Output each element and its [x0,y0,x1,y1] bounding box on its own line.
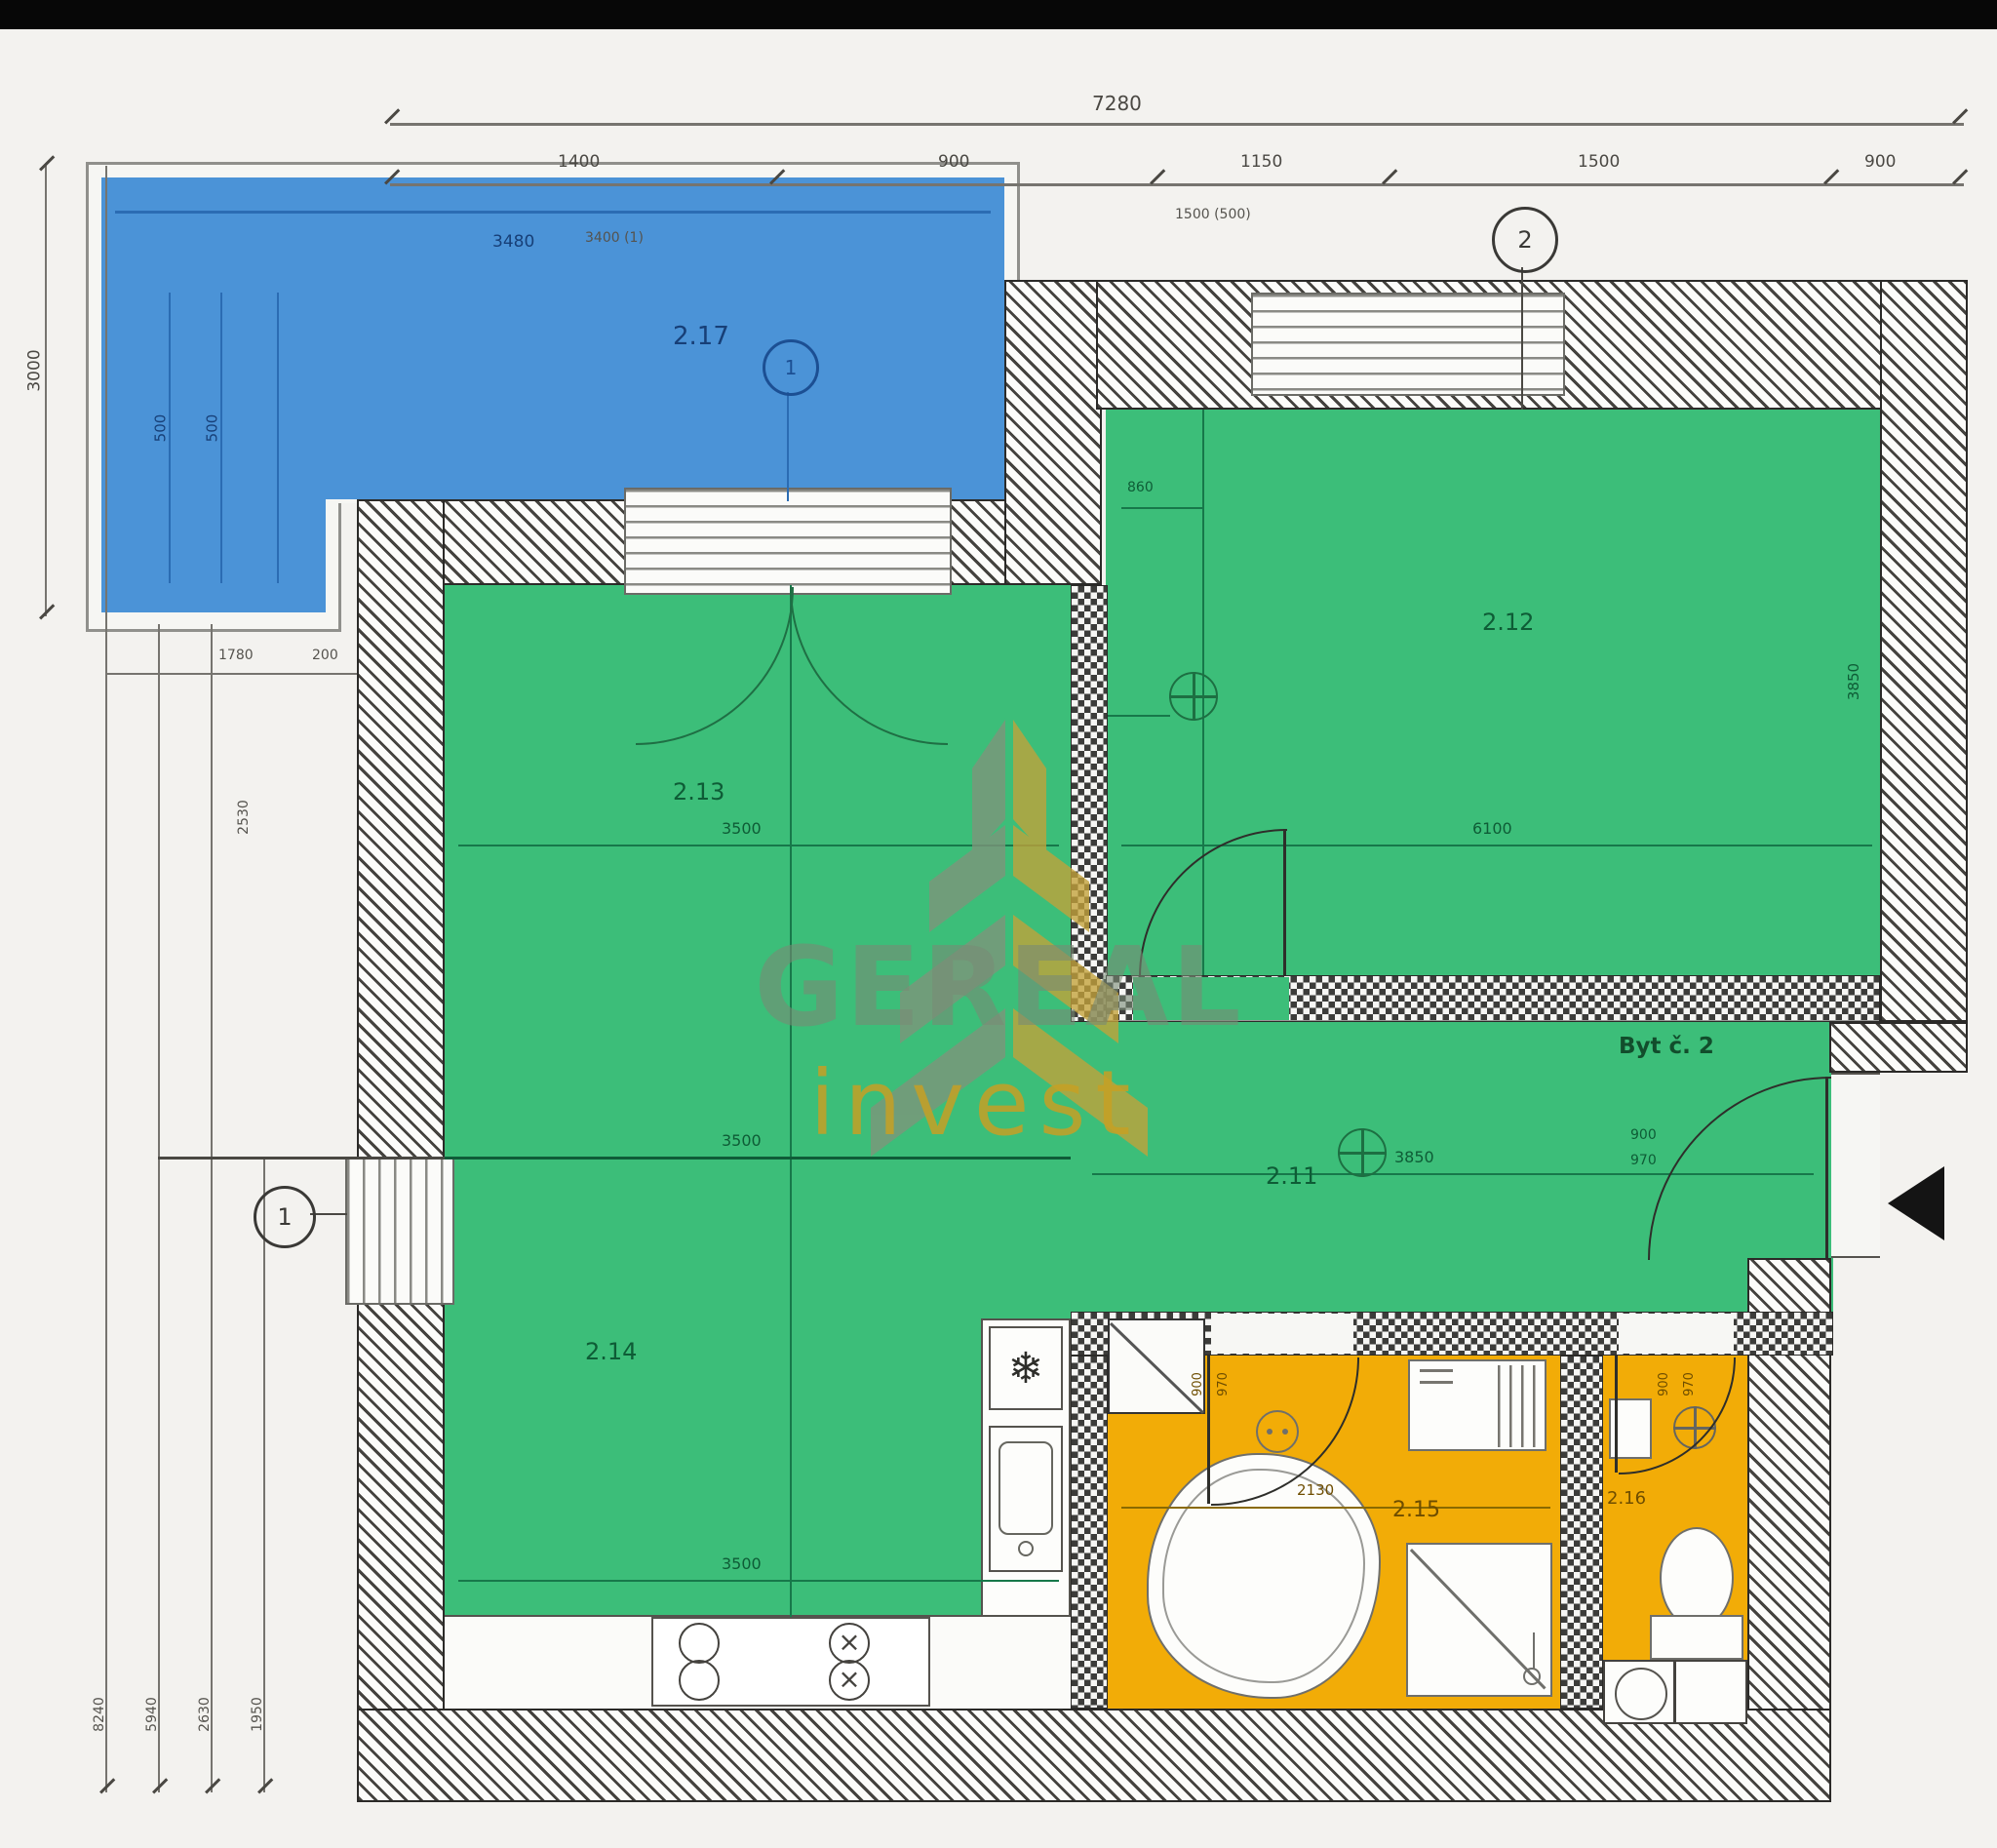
entrance-arrow [1888,1166,1944,1240]
terrace-section-marker: 1 [763,339,819,396]
dim-row-2-line [390,183,1964,186]
hall-dim: 3850 [1394,1148,1434,1166]
toilet-bowl [1660,1527,1734,1629]
entrance-dim-2: 970 [1630,1153,1657,1168]
door-leaf-wc [1615,1356,1618,1473]
window-left-wall [345,1157,454,1305]
marker-2-number: 2 [1517,226,1532,254]
door-opening-bedroom [1133,977,1289,1020]
room-label-bathroom: 2.15 [1392,1498,1440,1522]
dim-tick [1823,169,1839,184]
left-dim-line-b [105,166,107,1792]
terrace-dim-b: 500 [203,414,220,443]
bedroom-top-dim-line [1121,507,1203,509]
toilet-tank [1650,1615,1743,1660]
dim-tick [205,1778,220,1793]
dim-left-mid-1: 1780 [218,648,254,663]
light-line-bedroom [1108,715,1170,717]
room-label-bedroom: 2.12 [1482,609,1534,636]
window-center-line [790,585,792,1702]
dim-seg-2: 900 [938,152,969,172]
entrance-dim-1: 900 [1630,1127,1657,1143]
dim-seg-3: 1150 [1240,152,1282,172]
room-label-kitchen: 2.14 [585,1338,637,1365]
dim-bottom-4: 1950 [250,1697,265,1732]
dim-tick [257,1778,273,1793]
burner [679,1623,720,1664]
kitchen-dim-1: 3500 [722,1131,762,1150]
fridge: ❄ [989,1326,1063,1410]
bathtub-inner [1162,1469,1365,1683]
bedroom-side-dim: 3850 [1845,663,1862,700]
dim-top-total: 7280 [1092,92,1142,115]
burner-crossed: × [829,1660,870,1701]
door-opening-bath [1211,1314,1353,1354]
snowflake-icon: ❄ [1008,1344,1044,1394]
terrace-marker-number: 1 [785,356,798,379]
wall-right-step [1829,1022,1968,1073]
dim-left-rot: 2530 [236,800,252,835]
partition-main-vertical [1071,585,1108,1022]
section-marker-2: 2 [1492,207,1558,273]
burner [679,1660,720,1701]
light-symbol-hall [1338,1128,1387,1177]
dim-bottom-3: 2630 [197,1697,213,1732]
duct-box [1108,1318,1205,1414]
kitchen-dim-line-2 [458,1580,1059,1582]
bedroom-dim: 6100 [1472,819,1512,838]
left-dim-line-a [45,166,47,616]
bath-dim-s2: 970 [1216,1372,1231,1396]
stove: × × [651,1617,930,1707]
kitchen-dim-line-main [445,1157,1071,1160]
dim-tick [39,155,55,171]
room-label-hall: 2.11 [1266,1162,1317,1190]
dim-left-mid-2: 200 [312,648,338,663]
shower-tray [1406,1543,1552,1697]
bath-dim-line [1121,1507,1550,1509]
dim-seg-4: 1500 [1578,152,1620,172]
burner-crossed: × [829,1623,870,1664]
dim-sub-1: 3400 (1) [585,230,644,246]
dim-seg-1: 1400 [558,152,600,172]
dim-bottom-2: 5940 [144,1697,160,1732]
entrance-door-leaf [1825,1077,1828,1258]
washing-machine [1408,1359,1547,1451]
entrance-threshold [1831,1073,1880,1258]
terrace-width-dim: 3480 [492,232,534,252]
dim-tick [1382,169,1397,184]
terrace-marker-line [787,392,789,501]
window-bedroom-top [1251,293,1565,396]
bath-dim-s1: 900 [1191,1372,1205,1396]
top-black-bar [0,0,1997,29]
dim-tick [1150,169,1165,184]
dim-tick [1952,169,1968,184]
left-dim-line-d [211,624,213,1792]
window-living-top [624,488,952,595]
terrace-floor-lower [101,499,326,612]
dim-bottom-1: 8240 [92,1697,107,1732]
living-dim: 3500 [722,819,762,838]
dim-left-height: 3000 [25,349,45,391]
wall-left [357,499,445,1802]
room-label-terrace: 2.17 [673,322,729,351]
dim-sub-2: 1500 (500) [1175,207,1251,222]
door-opening-wc [1619,1314,1734,1354]
section-marker-1: 1 [254,1186,316,1248]
wc-dim-s1: 900 [1657,1372,1671,1396]
room-label-living: 2.13 [673,778,724,806]
kitchen-dim-2: 3500 [722,1554,762,1573]
door-leaf-bathroom [1207,1356,1210,1504]
marker-1-number: 1 [277,1203,292,1231]
door-leaf-bedroom [1283,829,1286,975]
dim-tick [99,1778,115,1793]
terrace-dim-a: 500 [151,414,169,443]
left-mid-dim-line [105,673,357,675]
terrace-top-line [115,211,991,214]
room-label-wc: 2.16 [1607,1488,1646,1509]
wall-terrace-right [1004,280,1102,585]
dim-tick [384,108,400,124]
partition-bath-left [1071,1356,1108,1709]
kitchen-sink-unit [989,1426,1063,1572]
dim-row-total-line [390,123,1964,126]
light-symbol-bedroom [1169,672,1218,721]
dim-seg-5: 900 [1864,152,1896,172]
kitchen-dim-extension [158,1157,445,1160]
terrace-dim-line-3 [277,293,279,583]
bath-dim: 2130 [1297,1481,1334,1499]
dim-tick [1952,108,1968,124]
dim-tick [152,1778,168,1793]
terrace-floor [101,177,1004,499]
marker-2-line [1521,267,1523,410]
wall-right [1880,280,1968,1022]
wc-dim-s2: 970 [1682,1372,1697,1396]
apartment-label: Byt č. 2 [1619,1034,1714,1059]
floor-plan-canvas: 3480 2.17 1 500 500 7280 1400 900 1150 1… [0,0,1997,1848]
dim-tick [39,604,55,619]
bath-drain-symbol [1256,1410,1299,1453]
left-dim-line-c [158,624,160,1792]
bedroom-top-dim: 860 [1127,480,1154,495]
wc-counter [1603,1660,1747,1724]
partition-bath-wc [1560,1356,1603,1709]
living-dim-line [458,845,1059,846]
